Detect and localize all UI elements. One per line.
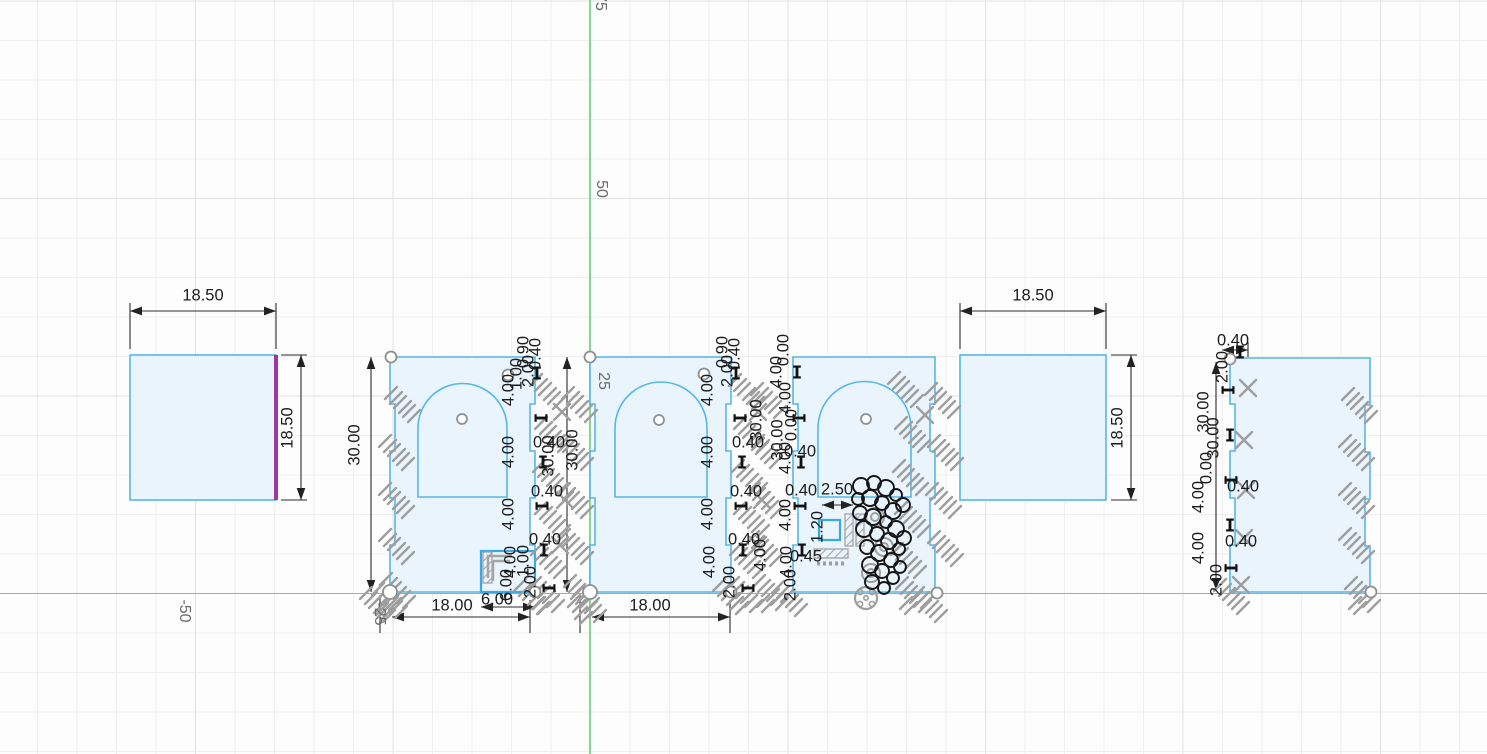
axis-grid-label: 50 xyxy=(593,180,610,198)
dimension-label[interactable]: 0.40 xyxy=(531,482,563,500)
tick-bar xyxy=(1225,567,1237,570)
sketch-viewport[interactable]: 18.5018.5018.5018.5030.0018.006.0018.003… xyxy=(0,0,1487,754)
dimension-label[interactable]: 2.00 xyxy=(720,566,738,598)
square-panel-right[interactable] xyxy=(960,355,1106,500)
tick-cap xyxy=(804,502,806,510)
dimension-label[interactable]: 2.50 xyxy=(821,480,853,498)
tick-cap xyxy=(803,414,805,422)
dimension-tick-glyph xyxy=(535,414,548,422)
dimension-label[interactable]: 4.00 xyxy=(499,436,517,468)
tick-bar xyxy=(734,417,746,420)
tick-cap xyxy=(734,414,736,422)
tick-cap xyxy=(745,502,747,510)
sketch-point-handle[interactable] xyxy=(583,585,597,599)
dimension-label[interactable]: 30.00 xyxy=(563,429,581,470)
dimension-label[interactable]: 0.40 xyxy=(1217,331,1249,349)
tick-bar xyxy=(796,366,799,378)
tick-cap xyxy=(543,584,545,592)
tick-bar xyxy=(1222,389,1234,392)
tick-bar xyxy=(535,417,547,420)
tick-cap xyxy=(738,456,746,458)
sketch-point-handle[interactable] xyxy=(932,588,943,599)
tick-cap xyxy=(545,414,547,422)
dimension-label[interactable]: 2.00 xyxy=(521,566,539,598)
dimension-label[interactable]: 4.00 xyxy=(499,498,517,530)
tick-cap xyxy=(1222,386,1224,394)
dimension-label[interactable]: 0.40 xyxy=(1225,532,1257,550)
cross-constraint-icon[interactable] xyxy=(554,404,570,420)
dimension-label[interactable]: 0.40 xyxy=(785,481,817,499)
tick-cap xyxy=(535,414,537,422)
dimension-label[interactable]: 4.00 xyxy=(698,498,716,530)
dimension-label[interactable]: 4.00 xyxy=(751,539,769,571)
dimension-label[interactable]: 4.00 xyxy=(776,499,794,531)
dimension-label[interactable]: 4.00 xyxy=(700,546,718,578)
tick-cap xyxy=(798,544,806,546)
arch-panel-3-center-point[interactable] xyxy=(861,414,871,424)
tick-cap xyxy=(797,466,805,468)
arch-panel-2-center-point[interactable] xyxy=(654,415,664,425)
flange-hole-glyph xyxy=(864,596,868,600)
dimension-label[interactable]: 0.40 xyxy=(1227,477,1259,495)
dimension-label[interactable]: 18.50 xyxy=(1012,286,1053,304)
sketch-point-handle[interactable] xyxy=(383,585,397,599)
dimension-tick-glyph xyxy=(1226,429,1234,442)
tick-cap xyxy=(1226,519,1234,521)
dimension-label[interactable]: 2.00 xyxy=(781,569,799,601)
tick-bar xyxy=(1229,429,1232,441)
dimension-tick-glyph xyxy=(1222,386,1235,394)
dimension-label[interactable]: 18.50 xyxy=(182,286,223,304)
tick-cap xyxy=(752,584,754,592)
sketch-point-handle[interactable] xyxy=(386,352,397,363)
tick-cap xyxy=(553,584,555,592)
tick-cap xyxy=(735,502,737,510)
dimension-label[interactable]: 1.20 xyxy=(808,511,826,543)
dimension-label[interactable]: 18.00 xyxy=(629,596,670,614)
axis-grid-label: 25 xyxy=(595,372,612,390)
flange-hole-glyph xyxy=(857,601,862,606)
flange-hole-glyph xyxy=(869,601,874,606)
dimension-label[interactable]: 0.00 xyxy=(1197,452,1215,484)
tick-cap xyxy=(1236,356,1244,358)
dimension-label[interactable]: 2.00 xyxy=(1213,351,1231,383)
tick-cap xyxy=(744,414,746,422)
dimension-label[interactable]: 18.50 xyxy=(278,407,296,448)
tick-cap xyxy=(793,376,801,378)
dimension-label[interactable]: 0.40 xyxy=(784,442,816,460)
tick-cap xyxy=(1232,386,1234,394)
sketch-point-handle[interactable] xyxy=(585,352,596,363)
tick-cap xyxy=(536,502,538,510)
tick-bar xyxy=(735,505,747,508)
sketch-canvas-svg: 18.5018.5018.5018.5030.0018.006.0018.003… xyxy=(0,0,1487,754)
tick-bar xyxy=(543,587,555,590)
tick-bar xyxy=(794,505,806,508)
tick-cap xyxy=(540,554,548,556)
hatched-bar-glyph xyxy=(845,514,853,546)
dimension-label[interactable]: 0.45 xyxy=(790,547,822,565)
sketch-point-handle[interactable] xyxy=(1366,587,1377,598)
tick-cap xyxy=(1235,564,1237,572)
dimension-tick-glyph xyxy=(734,414,747,422)
dimension-label[interactable]: 18.50 xyxy=(1108,407,1126,448)
arch-panel-1-center-point[interactable] xyxy=(457,414,467,424)
square-panel-left[interactable] xyxy=(130,355,276,500)
dimension-label[interactable]: 0.40 xyxy=(533,433,565,451)
dimension-label[interactable]: 4.00 xyxy=(698,374,716,406)
dimension-label[interactable]: 30.00 xyxy=(345,424,363,465)
dimension-label[interactable]: 0.40 xyxy=(730,482,762,500)
dimension-label[interactable]: 0.40 xyxy=(529,530,561,548)
dimension-label[interactable]: 18.00 xyxy=(431,596,472,614)
dimension-label[interactable]: 4.00 xyxy=(698,436,716,468)
tick-cap xyxy=(742,584,744,592)
dimension-label[interactable]: 2.00 xyxy=(718,355,736,387)
dimension-tick-glyph xyxy=(1226,519,1234,532)
dimension-label[interactable]: 30.00 xyxy=(747,399,765,440)
dimension-label[interactable]: 4.00 xyxy=(1189,481,1207,513)
axis-grid-label: -50 xyxy=(176,599,193,622)
axis-grid-label: 75 xyxy=(592,0,609,11)
dimension-label[interactable]: 4.00 xyxy=(1189,532,1207,564)
axis-grid-label: -25 xyxy=(371,602,388,625)
tick-cap xyxy=(546,502,548,510)
tick-bar xyxy=(1229,519,1232,531)
tick-bar xyxy=(742,587,754,590)
dimension-tick-glyph xyxy=(738,456,746,469)
tick-cap xyxy=(1226,429,1234,431)
tick-bar xyxy=(536,505,548,508)
tick-cap xyxy=(793,366,801,368)
tick-cap xyxy=(1226,439,1234,441)
tick-bar xyxy=(741,456,744,468)
dimension-label[interactable]: 6.00 xyxy=(497,569,515,601)
tick-cap xyxy=(1226,529,1234,531)
dimension-label[interactable]: 2.00 xyxy=(1207,564,1225,596)
tick-cap xyxy=(739,554,747,556)
dimension-label[interactable]: 1.00 xyxy=(507,358,525,390)
tick-cap xyxy=(738,466,746,468)
